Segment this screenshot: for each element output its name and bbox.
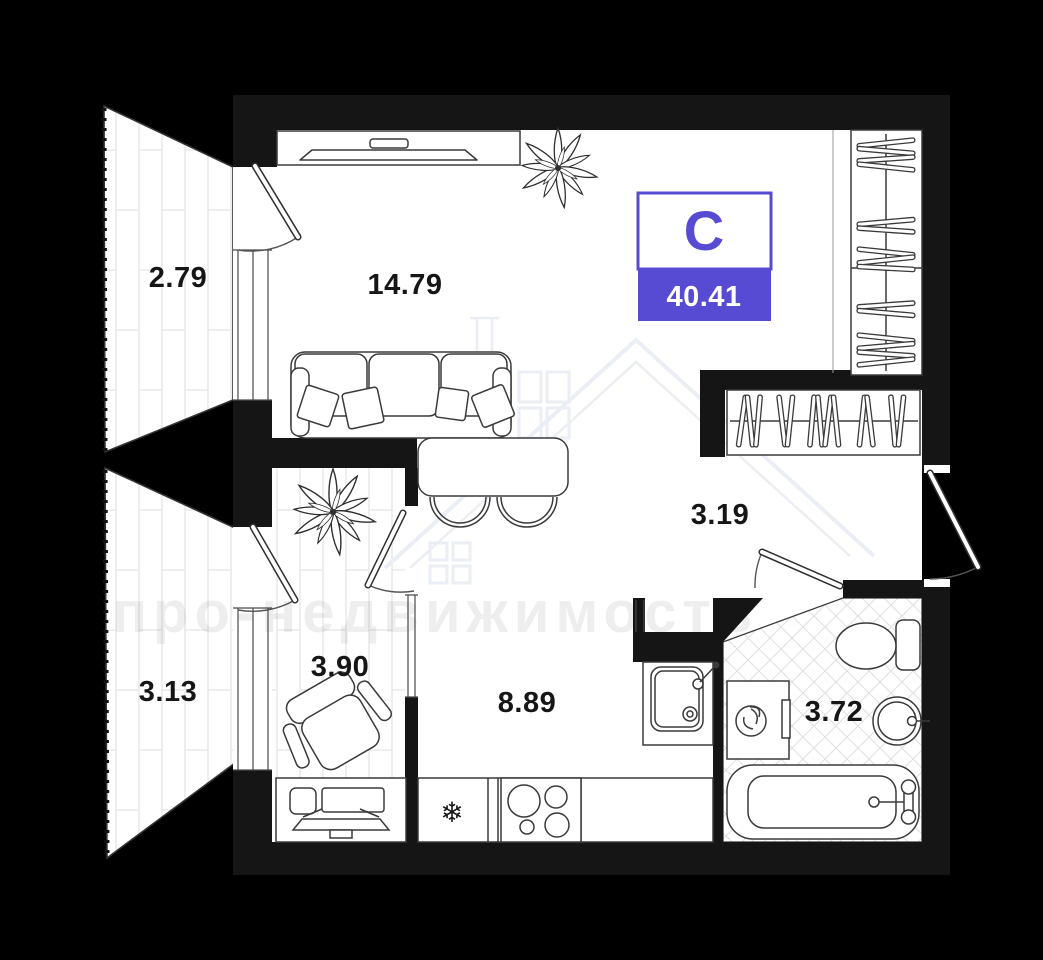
floor-plan-svg: про-недвижимость <box>0 0 1043 960</box>
sofa <box>291 352 515 438</box>
area-label-balcony-top: 2.79 <box>149 262 207 294</box>
wall-cap <box>405 506 418 513</box>
fridge: ❄ <box>440 797 463 828</box>
area-label-living-room: 14.79 <box>367 269 442 301</box>
keyboard <box>293 819 389 830</box>
badge-total-area: 40.41 <box>666 281 741 313</box>
kitchen-sink <box>643 662 720 746</box>
area-label-kitchen: 8.89 <box>498 687 556 719</box>
toilet <box>836 620 920 670</box>
tv-console <box>277 131 520 165</box>
wardrobe-horizontal <box>727 390 920 455</box>
washing-machine <box>727 681 790 759</box>
tv-icon <box>300 150 477 160</box>
badge-room-type: С <box>684 199 724 262</box>
wall-cap <box>924 579 950 587</box>
area-label-balcony-bottom: 3.13 <box>139 676 197 708</box>
tv-stand <box>370 139 408 148</box>
apartment-badge: С 40.41 <box>638 193 771 321</box>
floor-plan-image: про-недвижимость <box>0 0 1043 960</box>
area-label-bathroom: 3.72 <box>805 696 863 728</box>
area-label-cabinet: 3.90 <box>311 651 369 683</box>
balcony-railing-hatch <box>104 108 105 451</box>
fridge-icon: ❄ <box>440 797 463 828</box>
desk-item <box>330 830 352 838</box>
monitor <box>322 788 384 812</box>
dining-table <box>418 438 568 496</box>
area-label-hallway: 3.19 <box>691 499 749 531</box>
wardrobe-vertical <box>851 130 922 375</box>
stove <box>501 778 581 842</box>
desk-item <box>290 788 316 814</box>
bathtub <box>727 765 919 839</box>
desk <box>276 778 406 842</box>
